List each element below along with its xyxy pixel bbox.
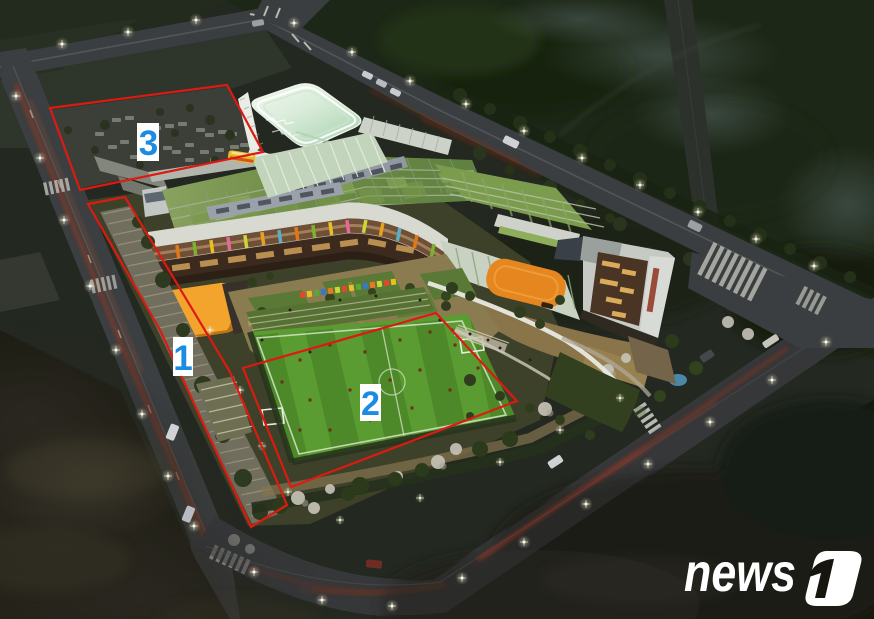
svg-text:news: news [684,543,796,603]
svg-text:1: 1 [173,339,192,378]
svg-text:2: 2 [361,385,380,423]
svg-text:3: 3 [139,124,158,163]
